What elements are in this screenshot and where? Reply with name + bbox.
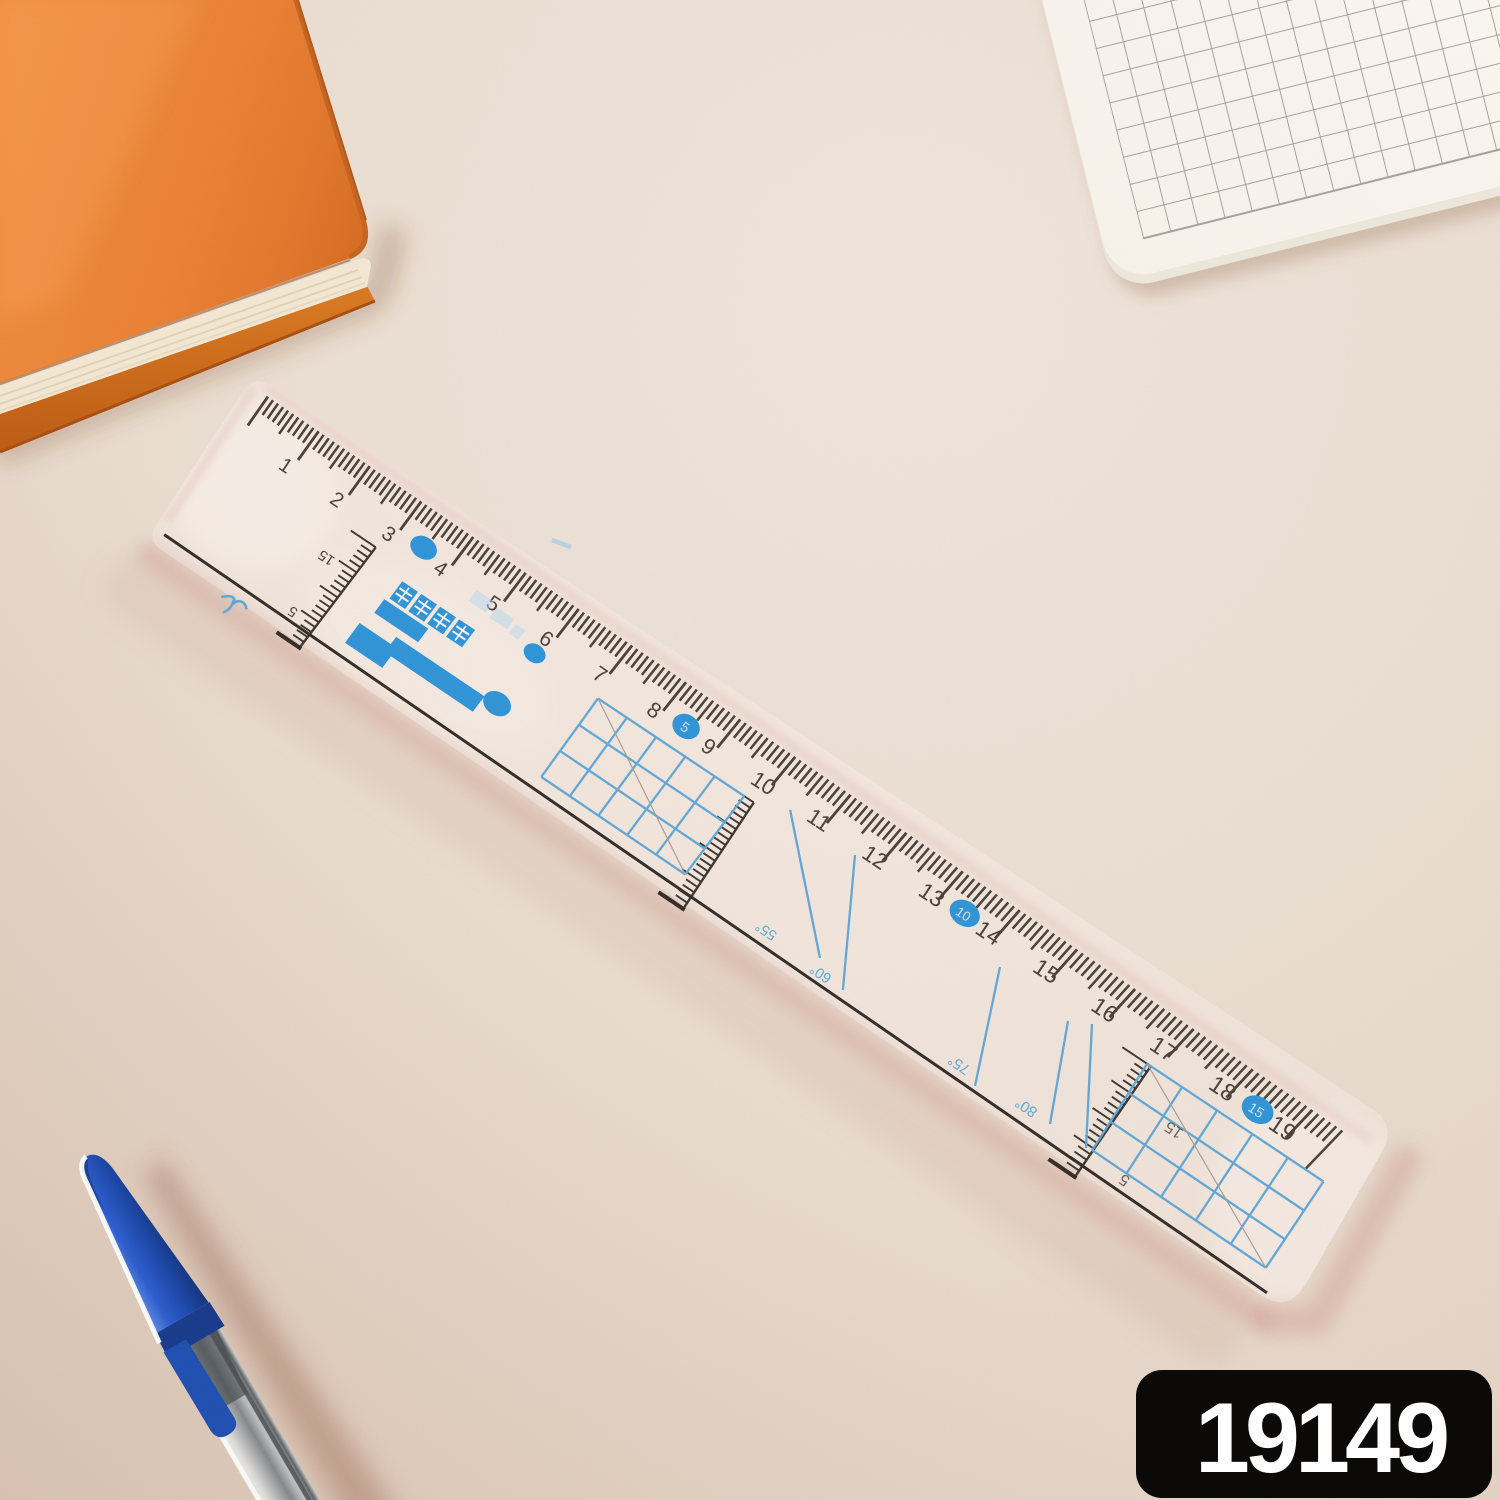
svg-text:19149: 19149 bbox=[1195, 1382, 1447, 1493]
